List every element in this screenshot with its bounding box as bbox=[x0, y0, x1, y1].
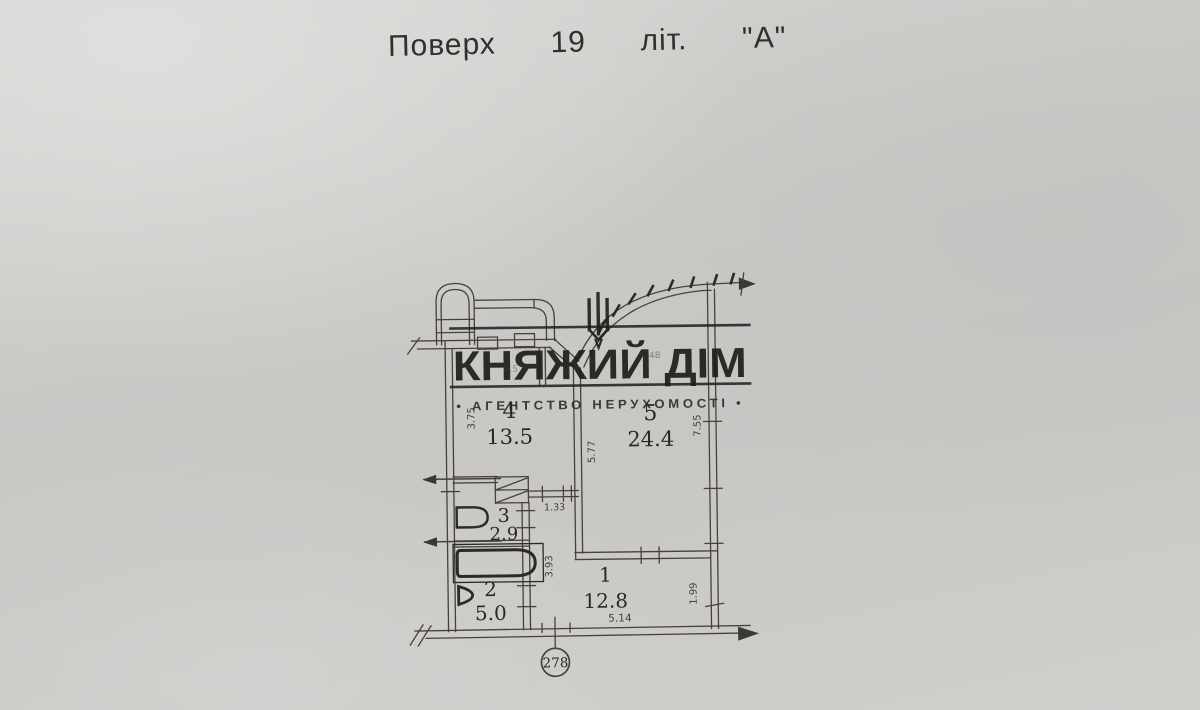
room-number: 4 bbox=[502, 399, 516, 424]
room-area: 13.5 bbox=[486, 425, 533, 450]
dim-bath-right: 3.93 bbox=[544, 555, 555, 577]
watermark-tagline: • АГЕНТСТВО НЕРУХОМОСТІ • bbox=[456, 396, 744, 414]
dim-bottom-width: 5.14 bbox=[608, 612, 632, 624]
room-area: 12.8 bbox=[583, 588, 628, 613]
room-number: 2 bbox=[484, 577, 497, 601]
dim-hall-width: 1.33 bbox=[544, 502, 565, 513]
dim-right-lower: 1.99 bbox=[689, 582, 700, 604]
room-number: 5 bbox=[643, 401, 657, 426]
sheet-number: 278 bbox=[542, 655, 568, 671]
dim-balcony-right: 48 bbox=[649, 351, 661, 361]
room-area: 5.0 bbox=[475, 601, 507, 625]
room-label-1: 1 12.8 bbox=[583, 562, 628, 613]
room-area: 24.4 bbox=[627, 427, 674, 452]
dim-left-height: 3.75 bbox=[466, 407, 477, 429]
sink bbox=[459, 586, 473, 604]
watermark-brand: КНЯЖИЙ ДІМ bbox=[453, 338, 748, 390]
room-label-3: 3 2.9 bbox=[489, 505, 518, 545]
floorplan-drawing: КНЯЖИЙ ДІМ • АГЕНТСТВО НЕРУХОМОСТІ • 4 1… bbox=[0, 0, 1200, 710]
arrow-left-icon bbox=[423, 537, 437, 547]
dim-right-upper: 7.55 bbox=[692, 414, 703, 436]
right-wall bbox=[702, 282, 724, 628]
vent-shaft bbox=[495, 477, 528, 503]
room-area: 2.9 bbox=[489, 524, 518, 545]
room-number: 1 bbox=[599, 563, 612, 587]
scanned-floorplan-page: Поверх 19 літ. "А" bbox=[0, 0, 1200, 710]
toilet bbox=[457, 507, 488, 527]
dim-balcony-left: 3.5 bbox=[504, 365, 518, 375]
room-label-2: 2 5.0 bbox=[475, 577, 507, 625]
balcony-arch bbox=[436, 283, 475, 344]
bottom-wall bbox=[410, 621, 759, 646]
dim-room5-left: 5.77 bbox=[587, 441, 598, 463]
arrow-left-icon bbox=[422, 475, 436, 485]
arrow-right-icon bbox=[738, 626, 759, 640]
